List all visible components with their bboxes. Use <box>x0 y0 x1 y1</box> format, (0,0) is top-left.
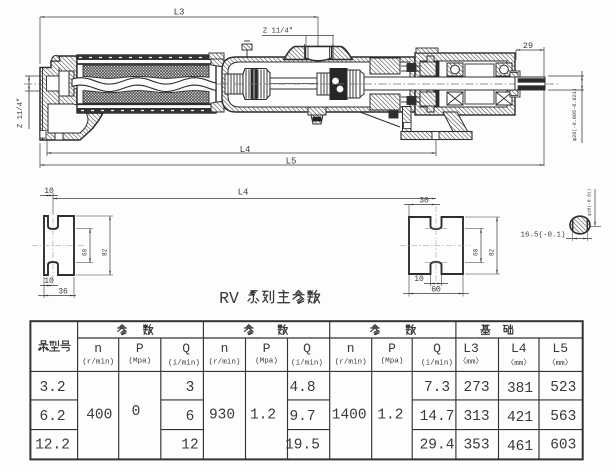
svg-text:313: 313 <box>463 409 489 425</box>
svg-text:12.2: 12.2 <box>35 438 70 454</box>
svg-text:L5: L5 <box>286 157 297 167</box>
svg-text:n: n <box>221 341 229 356</box>
svg-text:RV: RV <box>219 289 239 308</box>
svg-text:(Mpa): (Mpa) <box>128 358 151 366</box>
svg-text:10: 10 <box>44 187 54 196</box>
svg-text:273: 273 <box>463 380 489 396</box>
svg-text:L3: L3 <box>174 8 185 18</box>
svg-text:523: 523 <box>550 380 576 396</box>
svg-text:29: 29 <box>523 41 533 51</box>
svg-text:353: 353 <box>463 438 489 454</box>
svg-text:563: 563 <box>550 409 576 425</box>
svg-text:(r/min): (r/min) <box>82 359 114 367</box>
svg-text:(i/min): (i/min) <box>291 360 323 368</box>
svg-text:P: P <box>136 341 144 356</box>
svg-text:(i/min): (i/min) <box>421 360 453 368</box>
svg-text:6.2: 6.2 <box>39 409 65 425</box>
svg-text:6: 6 <box>186 409 195 425</box>
svg-text:421: 421 <box>507 410 533 426</box>
svg-text:461: 461 <box>507 439 533 455</box>
svg-text:381: 381 <box>507 381 533 397</box>
svg-text:16.5(-0.1): 16.5(-0.1) <box>520 232 565 240</box>
svg-text:9.7: 9.7 <box>289 409 315 425</box>
svg-text:1.2: 1.2 <box>377 407 403 423</box>
svg-text:3: 3 <box>186 380 195 396</box>
svg-text:930: 930 <box>209 407 235 423</box>
svg-text:n: n <box>94 341 102 356</box>
svg-text:(r/min): (r/min) <box>335 359 367 367</box>
svg-text:Q: Q <box>433 341 441 356</box>
svg-text:L4: L4 <box>238 188 249 198</box>
svg-text:φ28(-0.005-0.021): φ28(-0.005-0.021) <box>572 88 578 141</box>
svg-text:12: 12 <box>181 438 198 454</box>
svg-text:L4: L4 <box>240 145 251 155</box>
svg-text:603: 603 <box>550 438 576 454</box>
svg-text:〈mm〉: 〈mm〉 <box>459 357 483 367</box>
svg-text:(Mpa): (Mpa) <box>381 358 404 366</box>
svg-text:L3: L3 <box>463 341 479 356</box>
svg-text:3.2: 3.2 <box>39 380 65 396</box>
svg-text:L4: L4 <box>511 341 527 356</box>
svg-text:Z 11/4": Z 11/4" <box>17 98 25 128</box>
svg-text:1.2: 1.2 <box>250 407 276 423</box>
svg-text:1400: 1400 <box>332 407 367 423</box>
svg-text:60: 60 <box>82 248 89 256</box>
svg-text:(i/min): (i/min) <box>168 360 200 368</box>
svg-text:0: 0 <box>132 404 141 420</box>
svg-text:7.3: 7.3 <box>424 380 450 396</box>
svg-text:400: 400 <box>86 407 112 423</box>
svg-text:10: 10 <box>414 275 424 284</box>
svg-text:10: 10 <box>44 277 54 286</box>
svg-text:60: 60 <box>473 248 480 256</box>
svg-text:4.8: 4.8 <box>289 380 315 396</box>
svg-text:Q: Q <box>182 341 190 356</box>
svg-text:Q: Q <box>303 341 311 356</box>
svg-text:〈mm〉: 〈mm〉 <box>548 358 572 368</box>
svg-text:(Mpa): (Mpa) <box>255 358 278 366</box>
svg-text:〈mm〉: 〈mm〉 <box>507 358 531 368</box>
svg-text:φ10(-0.01): φ10(-0.01) <box>587 188 593 216</box>
svg-text:14.7: 14.7 <box>420 409 455 425</box>
svg-text:82: 82 <box>102 248 109 256</box>
svg-text:82: 82 <box>489 248 496 256</box>
svg-text:19.5: 19.5 <box>285 438 320 454</box>
svg-text:29.4: 29.4 <box>420 438 455 454</box>
svg-text:Z 11/4": Z 11/4" <box>263 28 293 36</box>
svg-text:P: P <box>263 341 271 356</box>
svg-text:P: P <box>388 341 396 356</box>
svg-text:L5: L5 <box>552 341 568 356</box>
svg-text:n: n <box>347 341 355 356</box>
svg-text:(r/min): (r/min) <box>209 359 241 367</box>
